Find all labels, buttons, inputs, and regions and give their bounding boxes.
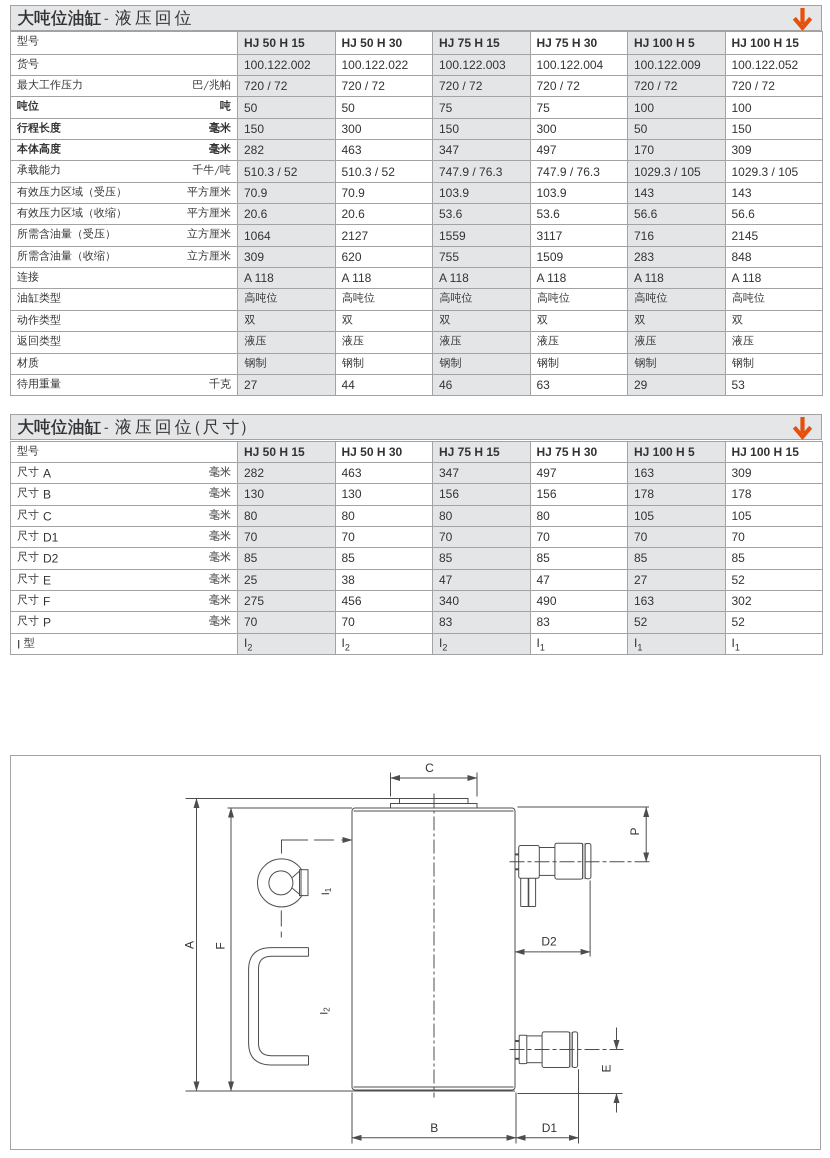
svg-text:P: P: [43, 615, 51, 629]
svg-text:F: F: [43, 594, 50, 608]
svg-text:A: A: [43, 466, 51, 480]
svg-text:C: C: [43, 509, 52, 523]
svg-text:B: B: [43, 487, 51, 501]
svg-text:D1: D1: [43, 530, 59, 544]
svg-text:E: E: [43, 573, 51, 587]
svg-text:I: I: [17, 637, 20, 651]
svg-text:D2: D2: [43, 551, 59, 565]
